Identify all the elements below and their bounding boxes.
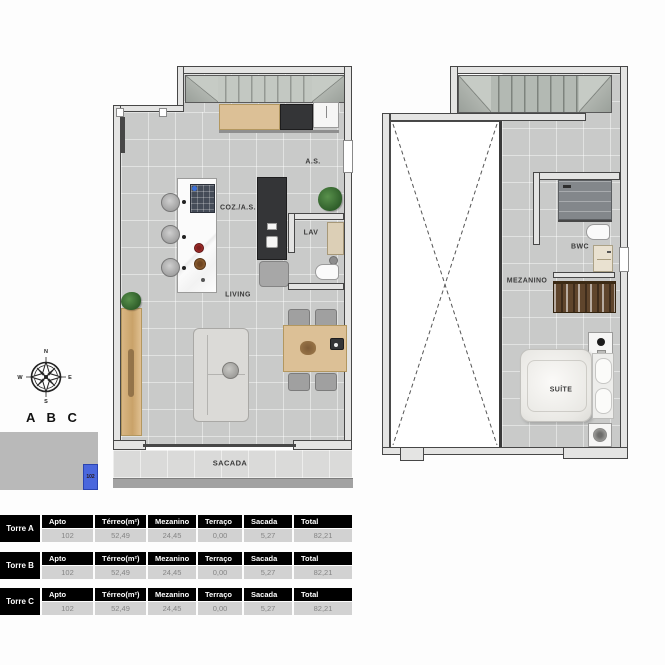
cell-apto: 102: [42, 529, 93, 542]
cell-apto: 102: [42, 602, 93, 615]
header-apto: Apto: [42, 552, 93, 565]
header-mezanino: Mezanino: [148, 552, 196, 565]
unit-102-selector[interactable]: 102: [83, 464, 98, 490]
tower-label-c: Torre C: [0, 588, 40, 615]
wall-bottom-stub-right: [563, 447, 628, 459]
plant-kitchen: [318, 187, 342, 211]
shower-glass: [558, 220, 612, 222]
appliance-icon: [266, 236, 278, 248]
cell-mezanino: 24,45: [148, 566, 196, 579]
red-pot: [194, 243, 204, 253]
bwc-wall-left: [533, 172, 540, 245]
staircase-upper: [458, 75, 612, 113]
label-coz-as: COZ./A.S.: [220, 205, 256, 212]
kitchen-counter-dark: [280, 104, 313, 130]
cell-apto: 102: [42, 566, 93, 579]
compass-icon: [24, 355, 68, 399]
shower: [558, 180, 612, 220]
cell-mezanino: 24,45: [148, 602, 196, 615]
cell-mezanino: 24,45: [148, 529, 196, 542]
bedroom-pouf: [588, 423, 612, 447]
shower-head-icon: [563, 185, 571, 188]
header-apto: Apto: [42, 588, 93, 601]
header-total: Total: [294, 515, 352, 528]
serving-bowl: [194, 258, 206, 270]
table-tray: [330, 338, 344, 350]
keyplan-block: 102: [0, 432, 98, 490]
cell-sacada: 5,27: [244, 529, 292, 542]
dining-table: [283, 325, 347, 372]
compass-s: S: [44, 399, 48, 405]
cell-sacada: 5,27: [244, 566, 292, 579]
header-total: Total: [294, 588, 352, 601]
cell-terreo: 52,49: [95, 566, 146, 579]
compass-e: E: [68, 375, 72, 381]
header-sacada: Sacada: [244, 515, 292, 528]
vanity-drawer-line: [597, 259, 611, 260]
pillow-2: [595, 388, 612, 414]
lav-wall-bottom: [288, 283, 344, 290]
door-opening-right-upper: [619, 247, 629, 272]
header-terreo: Térreo(m²): [95, 515, 146, 528]
ground-floor-plan: A.S. COZ./A.S. LAV LIVING SACADA: [113, 65, 353, 490]
double-height-void: [390, 121, 502, 448]
wall-stair-left-upper: [450, 66, 458, 115]
label-lav: LAV: [304, 230, 319, 237]
bwc-wall-bottom: [553, 272, 615, 278]
island-knob-1: [182, 200, 186, 204]
wall-left-upper: [382, 113, 390, 455]
unit-102-label: 102: [86, 474, 94, 480]
lamp-icon: [597, 338, 605, 346]
balcony-wall-stub-left: [113, 440, 146, 450]
compass-w: W: [17, 375, 22, 381]
sofa: [193, 328, 249, 422]
dining-chair-4: [315, 373, 337, 391]
island-knob-2: [182, 235, 186, 239]
cell-terraco: 0,00: [198, 529, 242, 542]
block-letters: A B C: [26, 410, 81, 425]
header-terraco: Terraço: [198, 588, 242, 601]
bed-headboard: [592, 353, 614, 419]
kitchen-sink: [313, 102, 339, 128]
area-table-torre-c: Torre C Apto Térreo(m²) Mezanino Terraço…: [0, 588, 352, 615]
header-terraco: Terraço: [198, 515, 242, 528]
plant-living: [121, 292, 141, 310]
compass-rose: N S W E: [14, 344, 78, 412]
cell-terraco: 0,00: [198, 566, 242, 579]
sofa-round-pillow: [222, 362, 239, 379]
bwc-vanity: [593, 245, 613, 272]
cell-sacada: 5,27: [244, 602, 292, 615]
lav-wall-top: [288, 213, 344, 220]
window-right: [343, 140, 353, 173]
pouf-rug-icon: [593, 428, 607, 442]
balcony-wall-stub-right: [293, 440, 352, 450]
kettle-icon: [267, 223, 277, 230]
sideboard-decor: [128, 349, 134, 397]
tower-label-a: Torre A: [0, 515, 40, 542]
sliding-door-track: [143, 444, 296, 447]
header-total: Total: [294, 552, 352, 565]
stool-3: [161, 258, 180, 277]
header-terraco: Terraço: [198, 552, 242, 565]
cell-total: 82,21: [294, 529, 352, 542]
sideboard: [121, 308, 142, 436]
cooktop-blue-dot: [192, 186, 197, 191]
stair-landing-left-upper: [459, 76, 491, 112]
counter-shadow: [219, 130, 339, 133]
cell-total: 82,21: [294, 566, 352, 579]
dining-chair-3: [288, 373, 310, 391]
tower-label-b: Torre B: [0, 552, 40, 579]
door-frame-post-1: [116, 108, 124, 117]
label-as: A.S.: [305, 159, 320, 166]
label-sacada: SACADA: [213, 459, 247, 468]
compass-n: N: [44, 349, 48, 355]
header-terreo: Térreo(m²): [95, 552, 146, 565]
mezzanine-floor-plan: MEZANINO BWC SUÍTE: [382, 65, 628, 462]
kitchen-seat: [259, 261, 289, 287]
cell-terraco: 0,00: [198, 602, 242, 615]
cell-total: 82,21: [294, 602, 352, 615]
table-centerpiece: [300, 341, 316, 355]
staircase: [185, 75, 345, 103]
lav-wall-left: [288, 213, 295, 253]
header-terreo: Térreo(m²): [95, 588, 146, 601]
pillow-1: [595, 358, 612, 384]
door-frame-post-2: [159, 108, 167, 117]
sink-divider: [326, 106, 327, 118]
wall-top: [177, 66, 352, 74]
header-mezanino: Mezanino: [148, 588, 196, 601]
toilet-upper: [586, 224, 610, 240]
sofa-seat-line-v: [207, 335, 208, 415]
label-suite: SUÍTE: [550, 387, 573, 394]
stool-2: [161, 225, 180, 244]
header-sacada: Sacada: [244, 588, 292, 601]
stool-1: [161, 193, 180, 212]
wall-bottom-stub-left: [400, 447, 424, 461]
bed-mattress: [520, 349, 592, 422]
wardrobe: [553, 281, 616, 313]
header-sacada: Sacada: [244, 552, 292, 565]
wall-right: [344, 66, 352, 488]
label-living: LIVING: [225, 292, 251, 299]
kitchen-counter-wood: [219, 104, 280, 130]
void-cross-icon: [391, 122, 499, 447]
balcony-rail: [113, 478, 353, 488]
wall-stair-bottom-upper: [390, 113, 586, 121]
lav-vanity: [327, 222, 344, 255]
stair-landing-right-upper: [579, 76, 611, 112]
toilet: [315, 264, 339, 280]
island-small-dot: [201, 278, 205, 282]
cell-terreo: 52,49: [95, 529, 146, 542]
vanity-faucet-icon: [607, 251, 611, 253]
wall-left: [113, 105, 121, 488]
stair-landing-left: [186, 76, 218, 102]
header-mezanino: Mezanino: [148, 515, 196, 528]
fridge-cabinet-unit: [257, 177, 287, 260]
label-bwc: BWC: [571, 244, 589, 251]
label-mezanino: MEZANINO: [507, 278, 548, 285]
area-table-torre-a: Torre A Apto Térreo(m²) Mezanino Terraço…: [0, 515, 352, 542]
entry-door-leaf: [120, 117, 125, 153]
cell-terreo: 52,49: [95, 602, 146, 615]
area-table-torre-b: Torre B Apto Térreo(m²) Mezanino Terraço…: [0, 552, 352, 579]
wall-top-upper: [450, 66, 628, 74]
stair-landing-right: [312, 76, 344, 102]
island-knob-3: [182, 266, 186, 270]
bwc-wall-top: [533, 172, 620, 180]
header-apto: Apto: [42, 515, 93, 528]
